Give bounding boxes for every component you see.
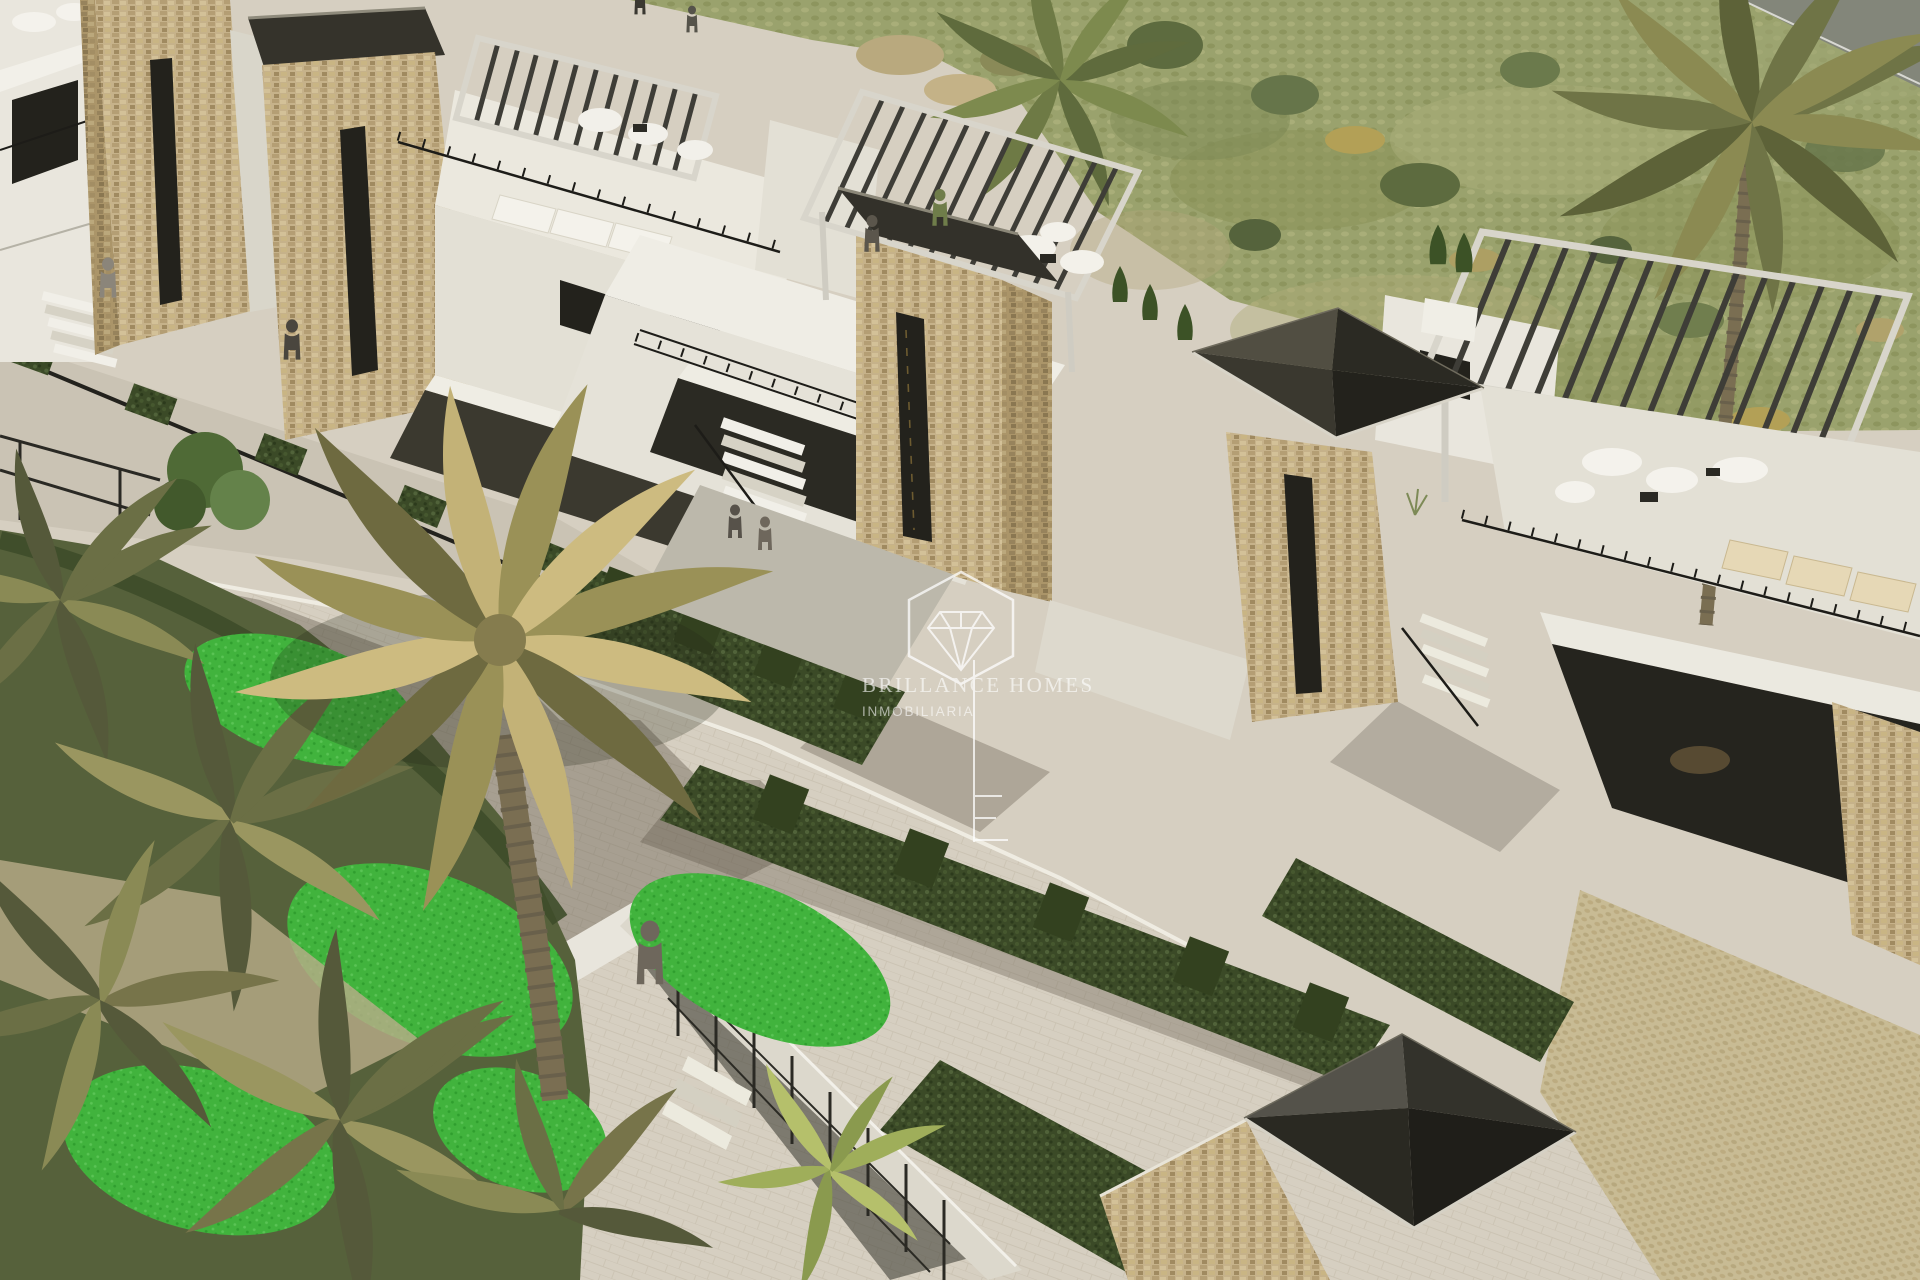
center-stone-tower <box>838 188 1058 602</box>
aerial-villa-render: BRILLANCE HOMES INMOBILIARIA <box>0 0 1920 1280</box>
stone-tower-a <box>80 0 255 355</box>
brand-name: BRILLANCE HOMES <box>862 673 1095 697</box>
brand-subtitle: INMOBILIARIA <box>862 704 974 719</box>
render-canvas: BRILLANCE HOMES INMOBILIARIA <box>0 0 1920 1280</box>
